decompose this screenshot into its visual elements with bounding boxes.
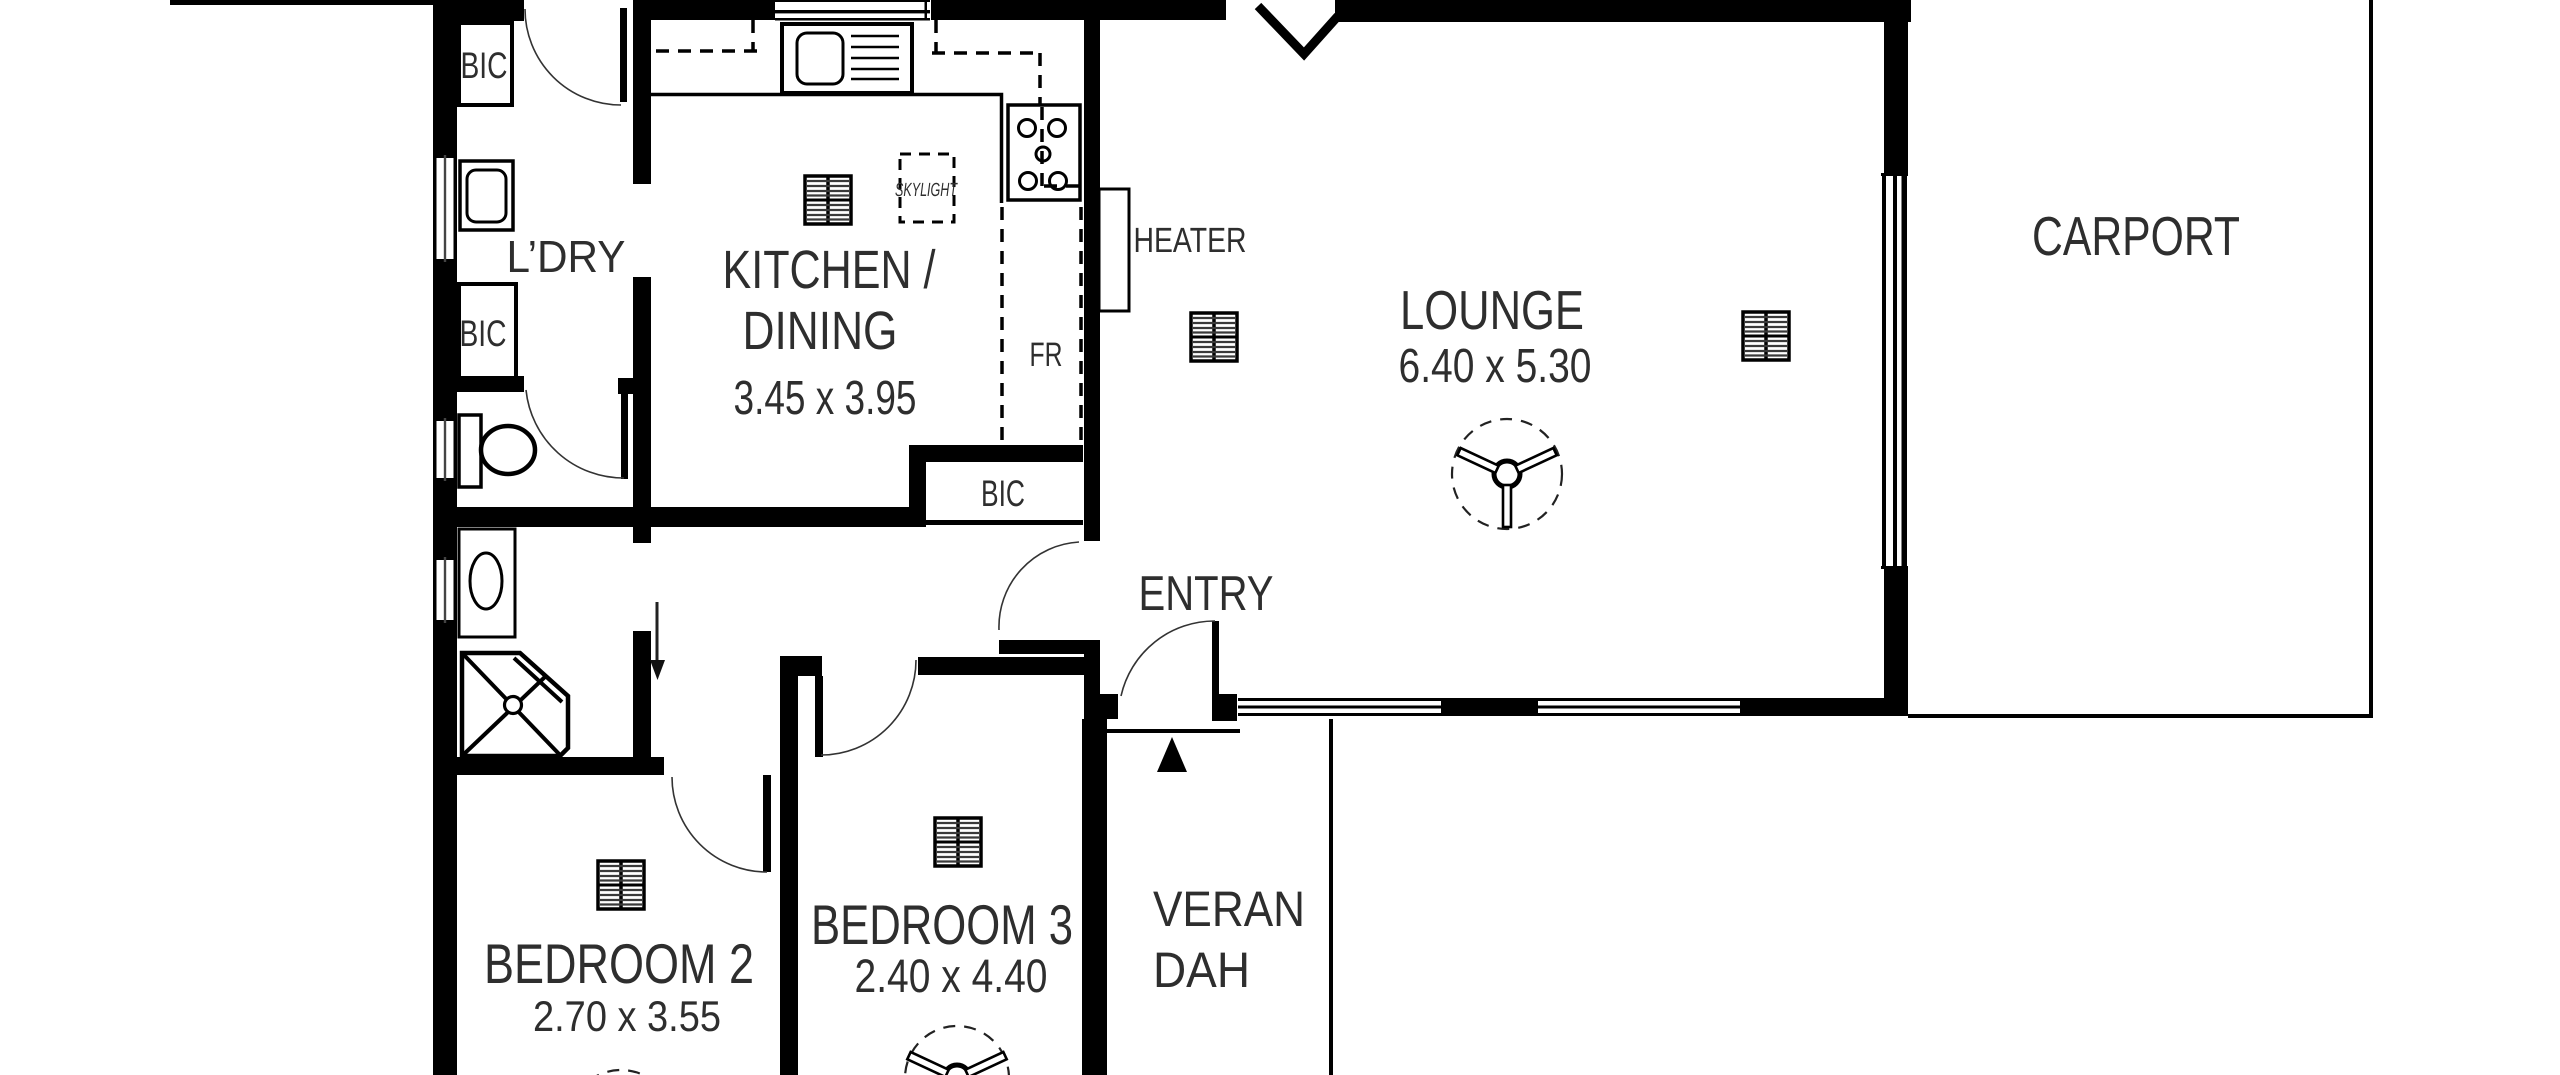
svg-text:L’DRY: L’DRY — [507, 231, 626, 282]
svg-text:BEDROOM 3: BEDROOM 3 — [811, 893, 1073, 956]
svg-text:KITCHEN /: KITCHEN / — [723, 240, 936, 300]
svg-text:DINING: DINING — [743, 301, 898, 361]
svg-text:DAH: DAH — [1153, 942, 1250, 998]
svg-text:VERAN: VERAN — [1153, 881, 1305, 937]
svg-text:BEDROOM 2: BEDROOM 2 — [484, 932, 754, 995]
svg-text:2.40 x 4.40: 2.40 x 4.40 — [855, 949, 1048, 1002]
svg-text:BIC: BIC — [461, 45, 508, 86]
svg-text:SKYLIGHT: SKYLIGHT — [895, 180, 958, 201]
svg-text:CARPORT: CARPORT — [2032, 205, 2240, 267]
svg-text:3.45 x 3.95: 3.45 x 3.95 — [734, 372, 917, 425]
svg-text:LOUNGE: LOUNGE — [1400, 279, 1584, 341]
svg-text:6.40 x 5.30: 6.40 x 5.30 — [1399, 340, 1592, 393]
svg-text:HEATER: HEATER — [1134, 221, 1247, 260]
svg-text:BIC: BIC — [460, 313, 507, 354]
svg-text:FR: FR — [1030, 336, 1063, 374]
svg-text:2.70 x 3.55: 2.70 x 3.55 — [533, 993, 721, 1041]
svg-text:BIC: BIC — [981, 473, 1025, 514]
svg-text:ENTRY: ENTRY — [1139, 567, 1274, 621]
